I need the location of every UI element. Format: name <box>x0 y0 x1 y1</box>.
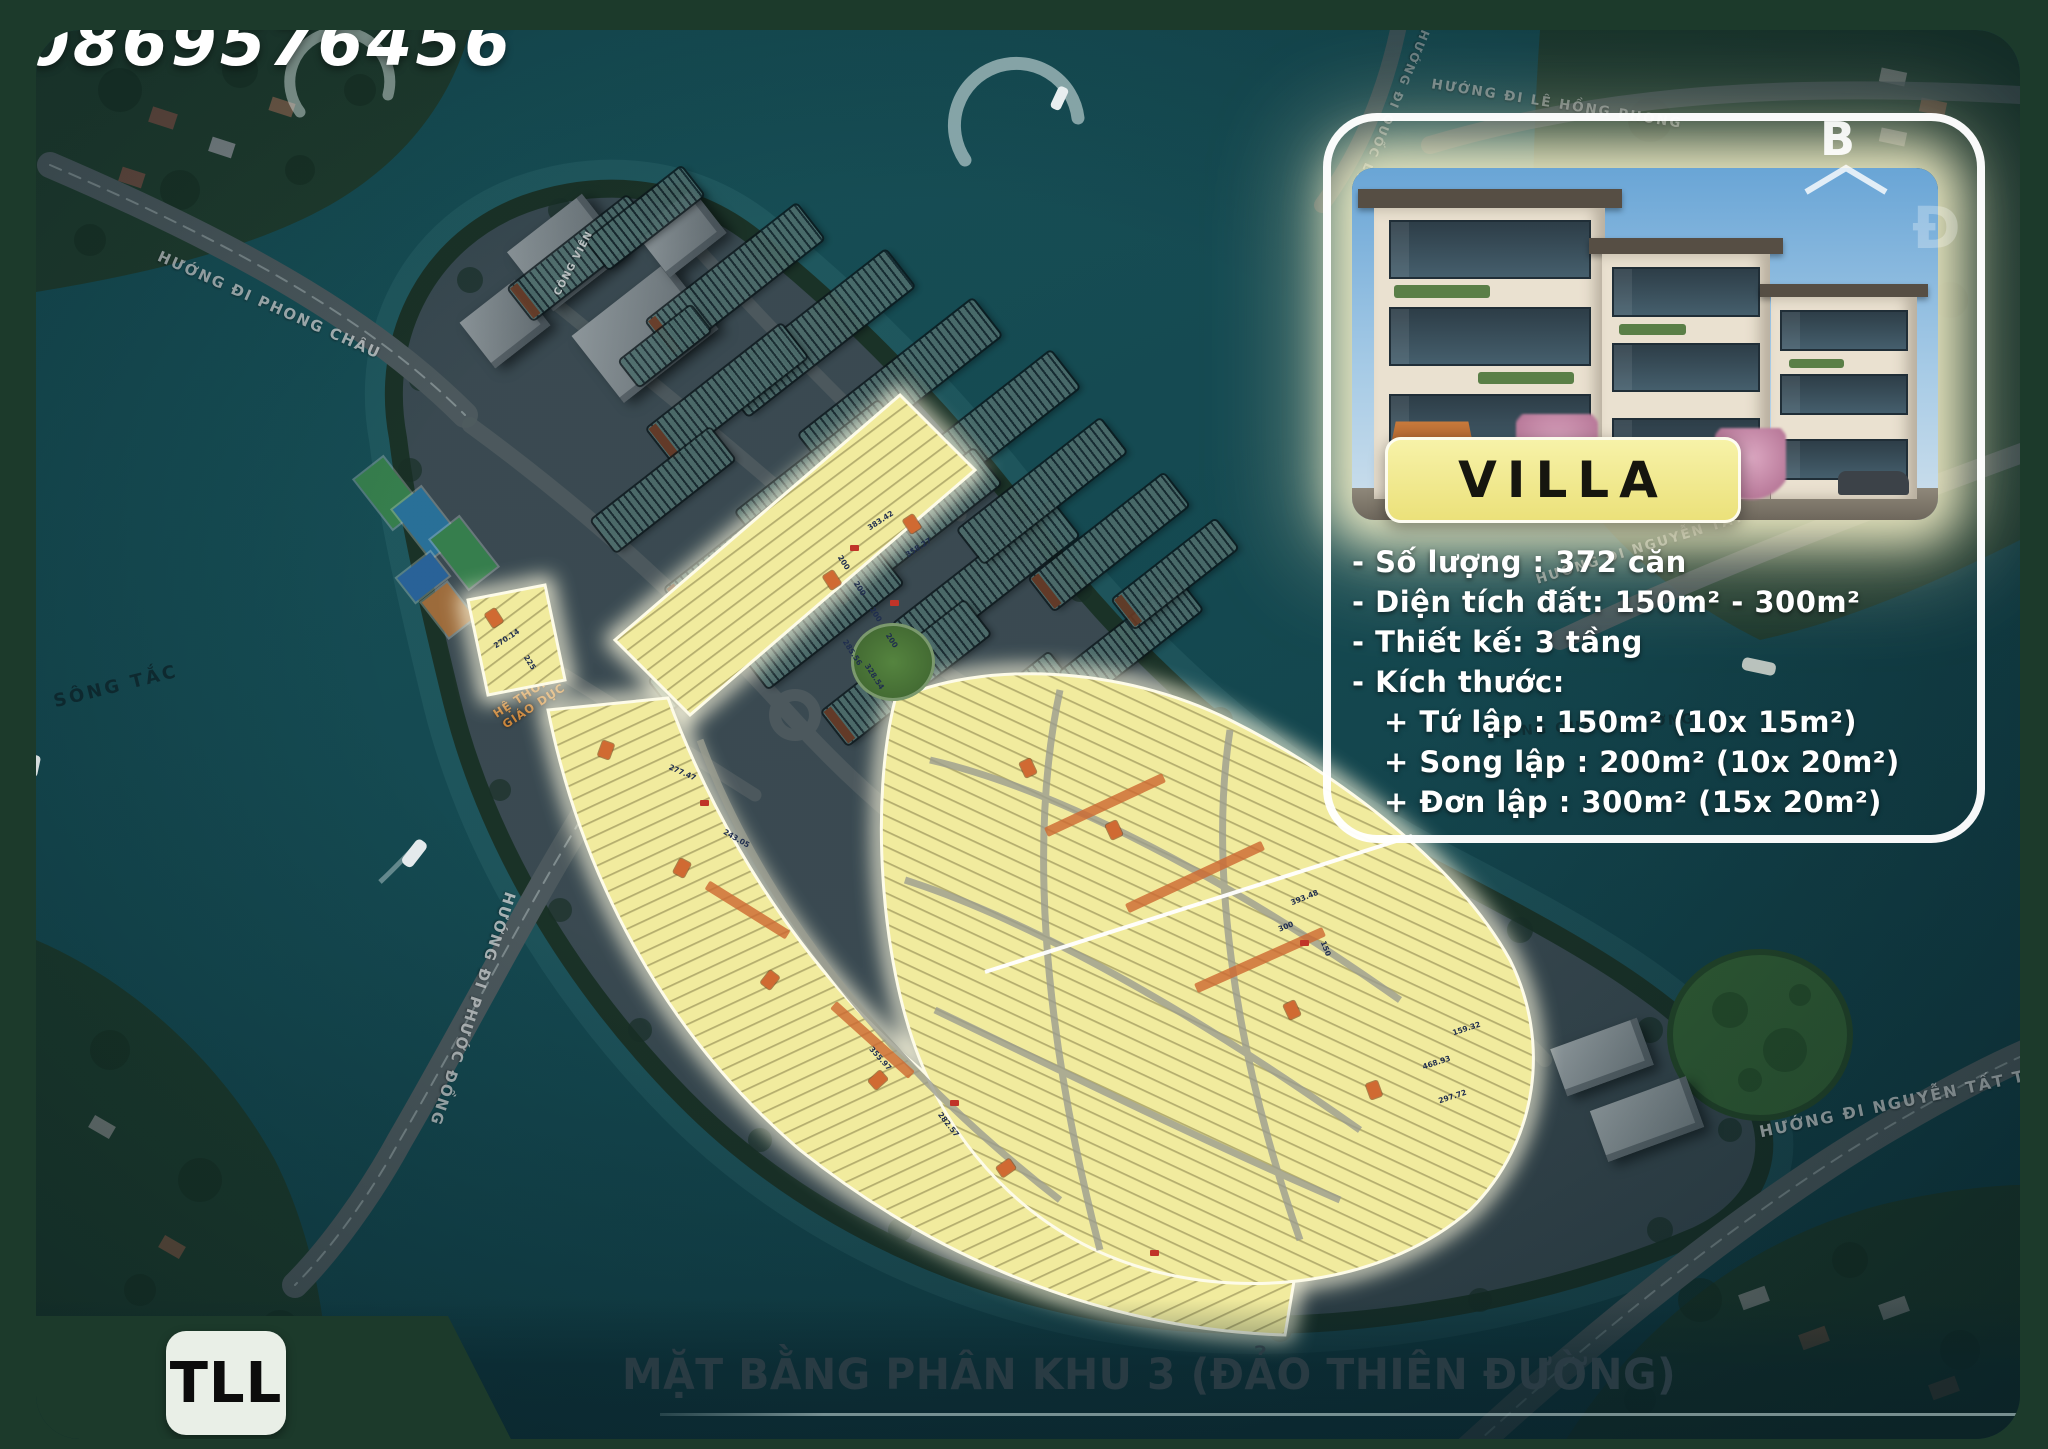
phone-number: 0869576456 <box>36 30 513 81</box>
compass-north-arrow-icon <box>1806 168 1886 192</box>
map-frame: HƯỚNG ĐI PHONG CHÂU HƯỚNG ĐI PHƯỚC ĐỒNG … <box>36 30 2020 1439</box>
poster-page: HƯỚNG ĐI PHONG CHÂU HƯỚNG ĐI PHƯỚC ĐỒNG … <box>0 0 2048 1449</box>
watermark-letter: Đ <box>1912 194 1961 262</box>
compass-arrow-layer <box>36 30 2020 1439</box>
map-stage: HƯỚNG ĐI PHONG CHÂU HƯỚNG ĐI PHƯỚC ĐỒNG … <box>36 30 2020 1439</box>
